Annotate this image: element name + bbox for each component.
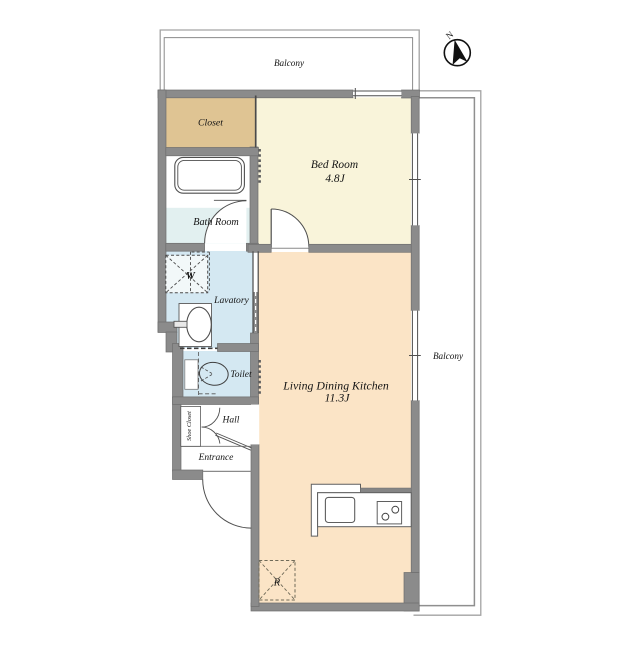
svg-text:W: W: [186, 271, 196, 282]
svg-text:Hall: Hall: [222, 416, 240, 426]
svg-text:11.3J: 11.3J: [324, 390, 350, 404]
svg-text:Entrance: Entrance: [198, 453, 234, 463]
svg-text:Balcony: Balcony: [274, 58, 305, 68]
svg-text:Toilet: Toilet: [230, 370, 252, 380]
svg-text:Shoe Closet: Shoe Closet: [186, 411, 193, 441]
svg-text:Bed Room: Bed Room: [311, 159, 358, 171]
svg-text:Bath Room: Bath Room: [193, 217, 239, 228]
svg-text:R: R: [273, 578, 281, 589]
svg-text:4.8J: 4.8J: [325, 173, 345, 185]
svg-text:Closet: Closet: [198, 118, 223, 129]
svg-text:Balcony: Balcony: [433, 351, 464, 361]
svg-text:Lavatory: Lavatory: [213, 295, 249, 306]
